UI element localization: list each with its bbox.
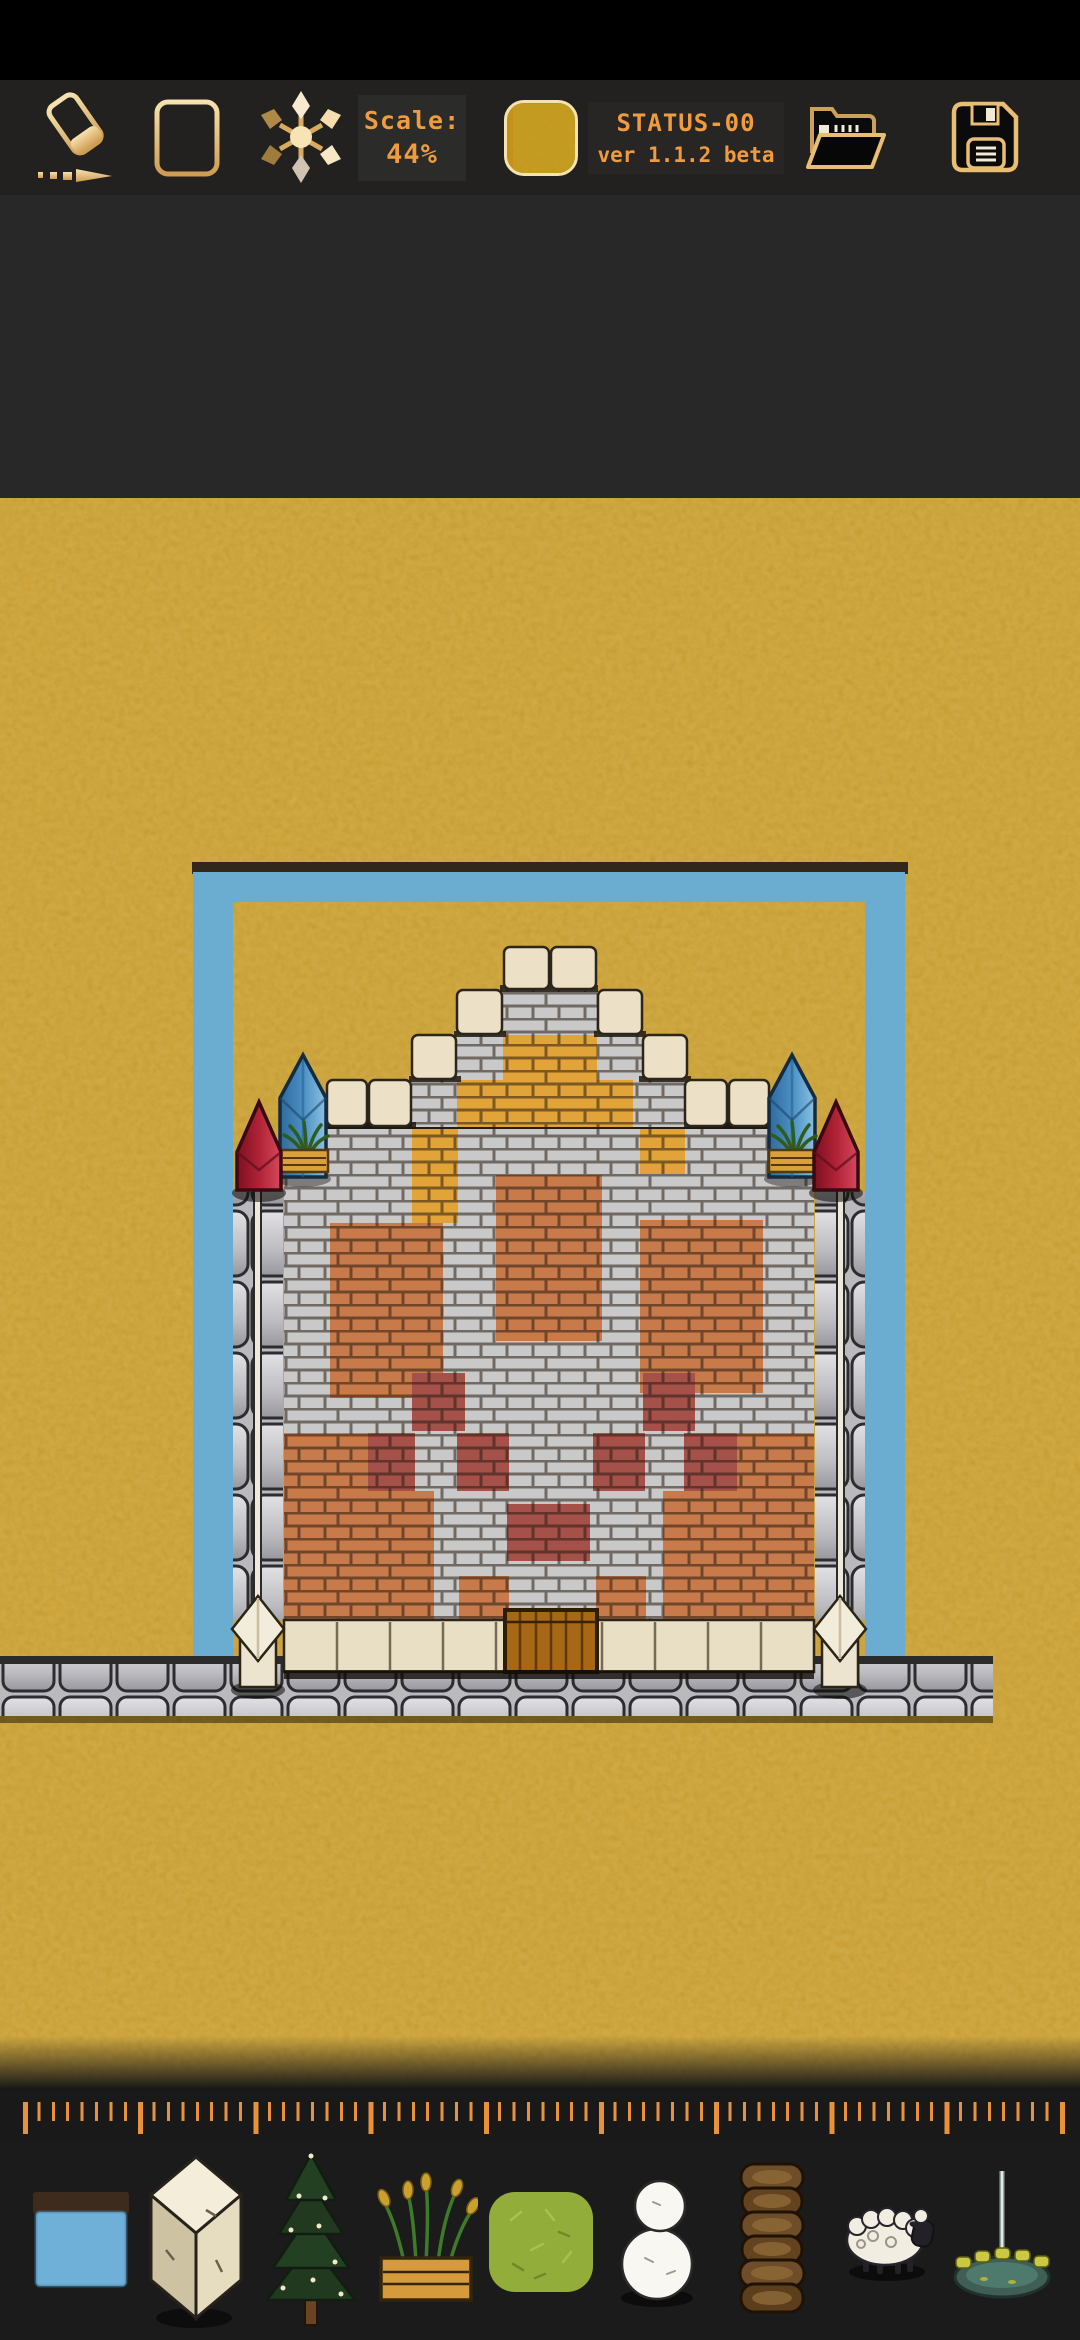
scale-label: Scale:: [364, 106, 460, 135]
grid-button[interactable]: [157, 102, 217, 174]
palette-item-log-stack[interactable]: [714, 2140, 829, 2340]
fountain-icon: [950, 2165, 1054, 2315]
snowman-icon: [607, 2165, 707, 2315]
eraser-button[interactable]: [38, 92, 112, 182]
base-course: [284, 1610, 814, 1679]
grass-tile-icon: [489, 2165, 593, 2315]
status-bar: [0, 0, 1080, 80]
palette-item-flower-planter[interactable]: [369, 2140, 484, 2340]
palette-item-pine-tree[interactable]: [253, 2140, 368, 2340]
scatter-button[interactable]: [261, 91, 341, 183]
open-folder-icon: [808, 109, 884, 167]
app-screen: Scale: 44% STATUS-00 ver 1.1.2 beta: [0, 0, 1080, 2340]
sand-tile-preview-icon: [513, 104, 578, 176]
palette-item-water[interactable]: [23, 2140, 138, 2340]
stone-pillar-block-icon: [146, 2147, 246, 2333]
palette-item-fountain[interactable]: [945, 2140, 1060, 2340]
log-stack-icon: [732, 2160, 812, 2320]
save-floppy-icon: [954, 104, 1016, 170]
current-tile-button[interactable]: [504, 100, 578, 176]
scale-value: 44%: [386, 139, 438, 170]
palette-ruler: [0, 2090, 1080, 2140]
toolbar: Scale: 44% STATUS-00 ver 1.1.2 beta: [0, 80, 1080, 195]
grid-icon: [157, 102, 217, 174]
flower-planter-icon: [374, 2165, 478, 2315]
bottom-dock: [0, 2090, 1080, 2340]
canvas-bottom-fade: [0, 2036, 1080, 2090]
tile-palette: [0, 2140, 1080, 2340]
scale-indicator[interactable]: Scale: 44%: [358, 95, 466, 181]
pine-tree-icon: [261, 2147, 361, 2333]
save-button[interactable]: [954, 104, 1016, 170]
scatter-brush-icon: [261, 91, 341, 183]
palette-item-grass[interactable]: [484, 2140, 599, 2340]
water-tile-icon: [29, 2150, 133, 2330]
palette-item-sheep[interactable]: [829, 2140, 944, 2340]
status-code: STATUS-00: [616, 109, 755, 137]
castle-wall: [284, 1122, 814, 1620]
open-button[interactable]: [808, 109, 884, 167]
sheep-icon: [835, 2185, 939, 2295]
status-readout: STATUS-00 ver 1.1.2 beta: [588, 102, 784, 174]
map-canvas[interactable]: [0, 498, 1080, 2090]
eraser-icon: [38, 92, 112, 182]
palette-item-stone-block[interactable]: [138, 2140, 253, 2340]
palette-item-snowman[interactable]: [599, 2140, 714, 2340]
workspace-margin: [0, 195, 1080, 498]
map-scene: [0, 498, 1080, 2090]
version-label: ver 1.1.2 beta: [597, 143, 774, 167]
wooden-door: [505, 1610, 597, 1672]
ruler-major-ticks: [23, 2102, 1073, 2134]
